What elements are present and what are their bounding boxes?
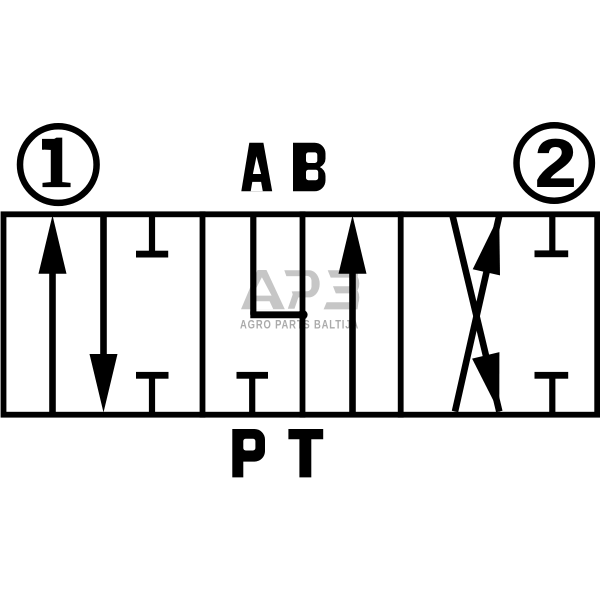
svg-text:1: 1 bbox=[37, 121, 74, 202]
svg-text:AGRO PARTS BALTIJA: AGRO PARTS BALTIJA bbox=[240, 318, 359, 332]
svg-text:2: 2 bbox=[535, 126, 576, 202]
